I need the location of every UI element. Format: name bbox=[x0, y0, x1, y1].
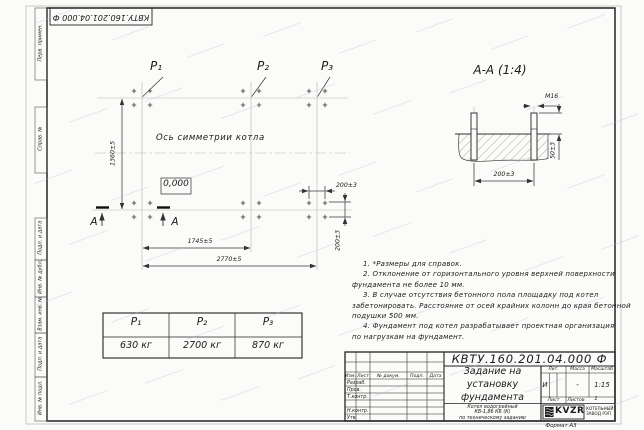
loads-table-header-p1: P₁ bbox=[106, 317, 166, 329]
notes: 1. *Размеры для справок. 2. Отклонение о… bbox=[352, 259, 618, 342]
revision-col-podp: Подп. bbox=[406, 374, 428, 379]
note-line: по нагрузкам на фундамент. bbox=[352, 332, 618, 342]
signature-row-razrab: Разраб. bbox=[347, 381, 366, 386]
loads-table-header-p3: P₃ bbox=[238, 317, 298, 329]
signature-row-tkontr: Т.контр. bbox=[347, 395, 368, 400]
drawing-title-line1: Задание на bbox=[444, 367, 541, 377]
top-stamp-doc-number: КВТУ.160.201.04.000 Ф bbox=[51, 12, 151, 21]
sheets-value: 1 bbox=[590, 397, 602, 403]
logo-caption-line2: ЗАВОД РЭП bbox=[586, 412, 611, 417]
bolt-thread-label: М16 bbox=[545, 94, 558, 101]
scale-header: Масштаб bbox=[589, 367, 615, 372]
loads-table-value-p3: 870 кг bbox=[238, 341, 298, 351]
dim-label-bolt-spacing: 200±3 bbox=[482, 172, 526, 179]
mass-header: Масса bbox=[566, 367, 589, 372]
revision-col-dokum: № докум. bbox=[370, 374, 407, 379]
margin-label-perv-primen: Перв. примен. bbox=[38, 13, 44, 73]
signature-row-prov: Пров. bbox=[347, 388, 361, 393]
margin-label-sprav-no: Справ. № bbox=[38, 109, 44, 169]
margin-label-inv-podl: Инв. № подл. bbox=[38, 368, 44, 428]
note-line: 3. В случае отсутствия бетонного пола пл… bbox=[352, 290, 618, 300]
section-letter-left: А bbox=[88, 217, 100, 229]
mass-value: - bbox=[566, 382, 589, 390]
load-label-p1: P₁ bbox=[145, 60, 167, 73]
sheets-label: Листов bbox=[563, 398, 589, 403]
revision-col-list: Лист bbox=[355, 374, 371, 379]
logo-text: KVZR bbox=[555, 407, 584, 417]
note-line: 4. Фундамент под котел разрабатывает про… bbox=[352, 321, 618, 331]
load-label-p3: P₃ bbox=[316, 60, 338, 73]
dim-label-bolt-pitch-h: 200±3 bbox=[336, 183, 357, 190]
loads-table-value-p2: 2700 кг bbox=[172, 341, 232, 351]
plan-leaders-dims bbox=[122, 77, 351, 266]
product-line3: по техническому заданию bbox=[444, 416, 541, 421]
scale-value: 1:15 bbox=[589, 382, 615, 390]
signature-row-nkontr: Н.контр. bbox=[347, 409, 368, 414]
drawing-title-line3: фундамента bbox=[444, 393, 541, 403]
dim-label-bolt-pitch-v: 200±3 bbox=[336, 218, 343, 262]
section-letter-right: А bbox=[169, 217, 181, 229]
revision-col-data: Дата bbox=[426, 374, 445, 379]
drawing-sheet: КВТУ.160.201.04.000 Ф Перв. примен. Спра… bbox=[0, 0, 644, 430]
loads-table-value-p1: 630 кг bbox=[106, 341, 166, 351]
lit-value: И bbox=[538, 382, 552, 390]
section-title: А-А (1:4) bbox=[465, 64, 535, 77]
signature-row-utv: Утв. bbox=[347, 416, 357, 421]
load-label-p2: P₂ bbox=[252, 60, 274, 73]
lit-header: Лит. bbox=[541, 367, 566, 372]
drawing-title-line2: установку bbox=[444, 380, 541, 390]
loads-table-header-p2: P₂ bbox=[172, 317, 232, 329]
dim-label-bolt-protrusion: 50±3 bbox=[551, 130, 558, 170]
note-line: забетонировать. Расстояние от осей крайн… bbox=[352, 301, 618, 311]
dim-label-span-total: 2770±5 bbox=[207, 257, 251, 264]
plan-center-lines bbox=[92, 82, 352, 270]
doc-number: КВТУ.160.201.04.000 Ф bbox=[446, 353, 613, 366]
dim-label-height: 1360±5 bbox=[111, 128, 118, 178]
note-line: подушки 500 мм. bbox=[352, 311, 618, 321]
symmetry-axis-label: Ось симметрии котла bbox=[156, 134, 265, 143]
note-line: 1. *Размеры для справок. bbox=[352, 259, 618, 269]
kvzr-logo-icon bbox=[545, 407, 554, 417]
note-line: фундамента не более 10 мм. bbox=[352, 280, 618, 290]
format-label: Формат А3 bbox=[538, 423, 584, 429]
dim-label-span-p1-p2: 1745±5 bbox=[178, 239, 222, 246]
anchor-bolt-marks bbox=[132, 89, 327, 219]
plan-view bbox=[92, 77, 352, 270]
level-mark: 0,000 bbox=[161, 180, 191, 190]
note-line: 2. Отклонение от горизонтального уровня … bbox=[352, 269, 618, 279]
